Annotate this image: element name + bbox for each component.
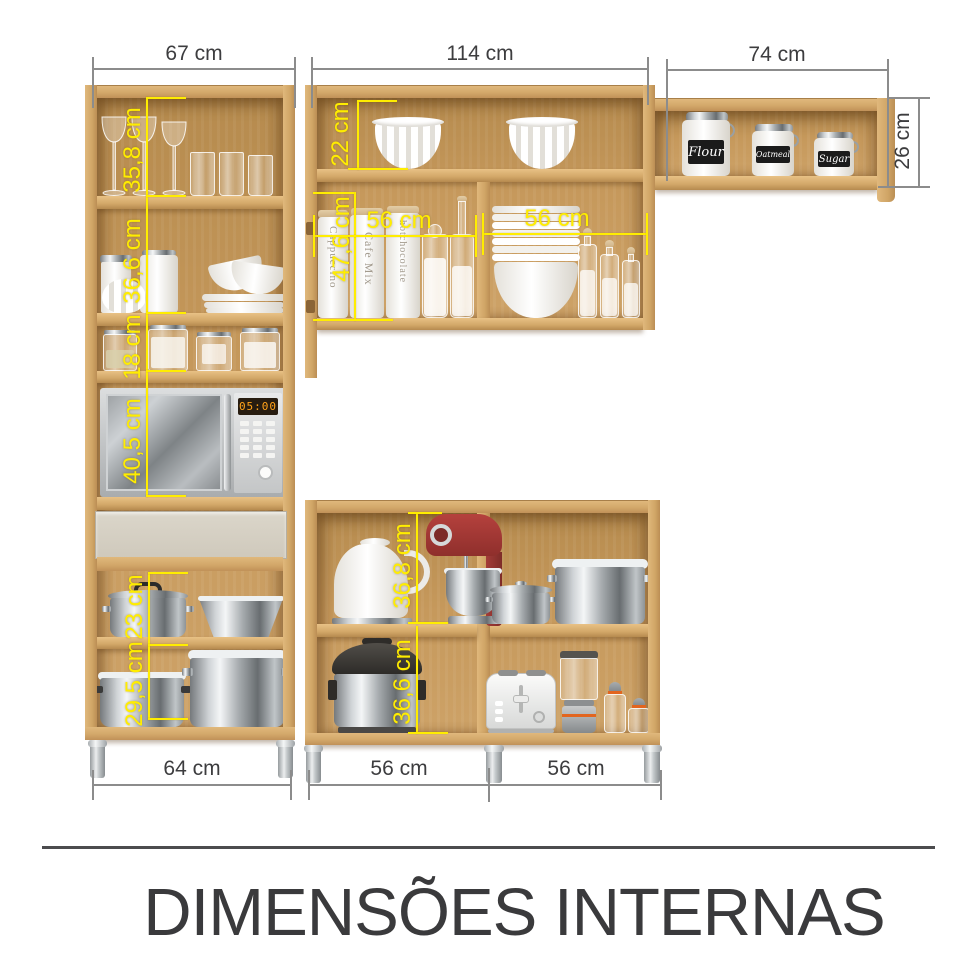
dimension-tick (666, 59, 668, 181)
pot-handle (102, 606, 111, 612)
shaker-bottle (604, 682, 626, 733)
wall-cabinet-right-panel (643, 85, 655, 330)
dimension-line (92, 68, 295, 70)
fluted-bowl (372, 117, 444, 169)
base-cabinet-right-panel (648, 500, 660, 745)
title-divider-line (42, 846, 935, 849)
internal-dimension-label: 56 cm (524, 207, 589, 231)
yellow-dimension-line (416, 512, 418, 624)
page-title: DIMENSÕES INTERNAS (143, 874, 884, 951)
internal-dimension-label: 36,6 cm (121, 218, 145, 303)
dimension-tick (887, 59, 889, 186)
jar-contents (151, 337, 185, 368)
yellow-tick (313, 319, 393, 321)
tall-cabinet-bottom-edge (85, 727, 295, 740)
dimension-tick (888, 97, 930, 99)
mixing-bowl (198, 596, 284, 637)
pot-body (492, 593, 550, 624)
chalk-label-jar: Flour (682, 112, 734, 176)
bowl (228, 260, 286, 297)
cooker-side-handle (328, 680, 337, 700)
dimension-tick (92, 770, 94, 800)
jar-contents (244, 342, 276, 368)
drawer-front (95, 511, 287, 559)
glass-jar (196, 332, 232, 371)
jar-label: Oatmeal (756, 146, 790, 163)
internal-dimension-label: 47,6 cm (330, 196, 354, 281)
bowl-body (375, 122, 441, 169)
shelf-board (317, 624, 477, 637)
internal-dimension-label: 23 cm (123, 574, 147, 639)
yellow-tick (646, 213, 648, 255)
base-cabinet-left-panel (305, 500, 317, 745)
jar-label: Sugar (818, 151, 850, 167)
yellow-tick (475, 215, 477, 257)
dimension-label: 26 cm (891, 112, 915, 169)
bottle-body (628, 708, 650, 733)
dimension-label: 67 cm (165, 42, 222, 66)
internal-dimension-label: 29,5 cm (123, 641, 147, 726)
yellow-tick (408, 622, 448, 624)
dimension-tick (311, 57, 313, 108)
pot-body (555, 567, 645, 624)
canister-label: Cafe Mix (361, 232, 376, 286)
internal-dimension-label: 18 cm (121, 314, 145, 379)
glass-jar (240, 328, 280, 371)
bowl-body (198, 596, 284, 637)
bowl-rim (372, 117, 444, 127)
yellow-tick (146, 312, 186, 314)
yellow-tick (313, 192, 354, 194)
dimension-label: 56 cm (370, 757, 427, 781)
internal-dimension-label: 22 cm (329, 101, 353, 166)
dimension-line (308, 784, 489, 786)
wall-shelf-top-panel (655, 98, 895, 111)
dimension-line (918, 97, 920, 187)
yellow-tick (408, 732, 448, 734)
bottle-contents (624, 283, 638, 316)
shelf-board (97, 196, 283, 209)
kettle-base (332, 618, 412, 624)
jar-label (202, 344, 226, 364)
fluted-bowl (506, 117, 578, 169)
dimension-label: 114 cm (446, 42, 513, 66)
microwave-buttons (240, 421, 249, 426)
cork-spice-bottle (578, 228, 597, 318)
dimension-line (92, 784, 291, 786)
dimension-tick (294, 57, 296, 108)
dimension-tick (308, 770, 310, 800)
bottle-contents (580, 270, 595, 316)
stockpot (552, 559, 648, 624)
internal-dimension-label: 40,5 cm (121, 398, 145, 483)
yellow-dimension-line (148, 572, 150, 720)
tumbler-glass (190, 152, 215, 196)
dimension-line (311, 68, 648, 70)
cork-spice-bottle (622, 247, 640, 318)
yellow-tick (146, 195, 186, 197)
bowl-rim (198, 596, 284, 601)
chalk-label-jar: Sugar (814, 132, 858, 176)
toaster-buttons (495, 701, 503, 706)
bottle-contents (452, 266, 472, 316)
tumbler-glass (248, 155, 273, 196)
base-cabinet-bottom-edge (305, 733, 660, 745)
microwave-control-panel: 05:00 (234, 393, 282, 493)
internal-dimension-label: 56 cm (366, 209, 431, 233)
dimension-label: 64 cm (163, 757, 220, 781)
yellow-dimension-line (416, 626, 418, 734)
toaster-dial (533, 711, 545, 723)
product-dimension-sheet: 05:00 Cappuccino (0, 0, 975, 975)
yellow-tick (146, 495, 186, 497)
tumbler-glass (219, 152, 244, 196)
toaster-slot (526, 670, 546, 676)
yellow-tick (313, 215, 315, 257)
yellow-tick (357, 100, 397, 102)
blender (556, 651, 602, 733)
internal-dimension-label: 36,8 cm (391, 523, 415, 608)
tall-bottle (450, 196, 474, 318)
wall-cabinet-top-panel (305, 85, 655, 98)
cooker-side-handle (417, 680, 426, 700)
base-cabinet-top-panel (305, 500, 660, 513)
yellow-dimension-line (313, 235, 477, 237)
yellow-tick (148, 644, 188, 646)
casserole-pot (488, 581, 554, 624)
shelf-board (97, 497, 283, 510)
yellow-tick (146, 370, 186, 372)
hinge-mark (306, 300, 315, 313)
yellow-dimension-line (482, 233, 648, 235)
microwave-display: 05:00 (238, 398, 278, 415)
pot-handle (182, 668, 193, 676)
bottle-contents (602, 278, 617, 316)
dimension-label: 74 cm (748, 43, 805, 67)
internal-dimension-label: 36,6 cm (391, 639, 415, 724)
dimension-line (489, 784, 661, 786)
dimension-tick (647, 57, 649, 105)
cork-spice-bottle (600, 240, 619, 318)
pot-body (190, 658, 284, 727)
large-bowl (494, 262, 578, 318)
tall-cabinet-right-panel (283, 85, 295, 740)
milk-bottle (422, 224, 448, 318)
chalk-label-jar: Oatmeal (752, 124, 798, 176)
blender-base (562, 706, 596, 733)
microwave-handle (224, 394, 231, 491)
dimension-tick (290, 770, 292, 800)
dimension-label: 56 cm (547, 757, 604, 781)
pot-handle (185, 606, 194, 612)
yellow-tick (408, 512, 442, 514)
yellow-dimension-line (357, 100, 359, 170)
yellow-dimension-line (146, 97, 148, 497)
milk-contents (424, 258, 446, 316)
yellow-tick (146, 97, 186, 99)
yellow-tick (148, 572, 188, 574)
pot-handle (547, 575, 557, 582)
blender-accent-ring (562, 714, 596, 717)
yellow-tick (482, 213, 484, 255)
microwave-start-button (258, 465, 273, 480)
glass-jar (148, 325, 188, 371)
bowl-rim (506, 117, 578, 127)
tall-cabinet-left-panel (85, 85, 97, 740)
plate (206, 308, 284, 313)
yellow-tick (148, 718, 188, 720)
wall-shelf-bottom (655, 176, 878, 190)
dimension-tick (660, 770, 662, 800)
shaker-bottle (628, 698, 650, 733)
internal-dimension-label: 35,8 cm (121, 107, 145, 192)
mixer-front-dial (430, 524, 452, 546)
dimension-tick (92, 57, 94, 108)
shelf-board (317, 169, 643, 182)
cabinet-leg (644, 745, 660, 783)
stockpot (188, 650, 286, 727)
bottle-neck (458, 201, 466, 237)
drawer-rail (97, 557, 283, 571)
toaster-slot (498, 670, 518, 676)
toaster (486, 669, 556, 733)
pot-handle (485, 597, 493, 602)
blender-jar (560, 658, 598, 700)
jar-label: Flour (688, 140, 724, 164)
tall-cabinet-top-panel (85, 85, 295, 98)
yellow-tick (348, 168, 408, 170)
shelf-board (490, 624, 648, 637)
bottle-body (604, 694, 626, 733)
bowl-and-plate-stack (202, 258, 286, 313)
dimension-line (666, 69, 888, 71)
dimension-tick (878, 186, 930, 188)
bowl-body (509, 122, 575, 169)
plate (202, 294, 286, 301)
toaster-lever (513, 695, 529, 703)
